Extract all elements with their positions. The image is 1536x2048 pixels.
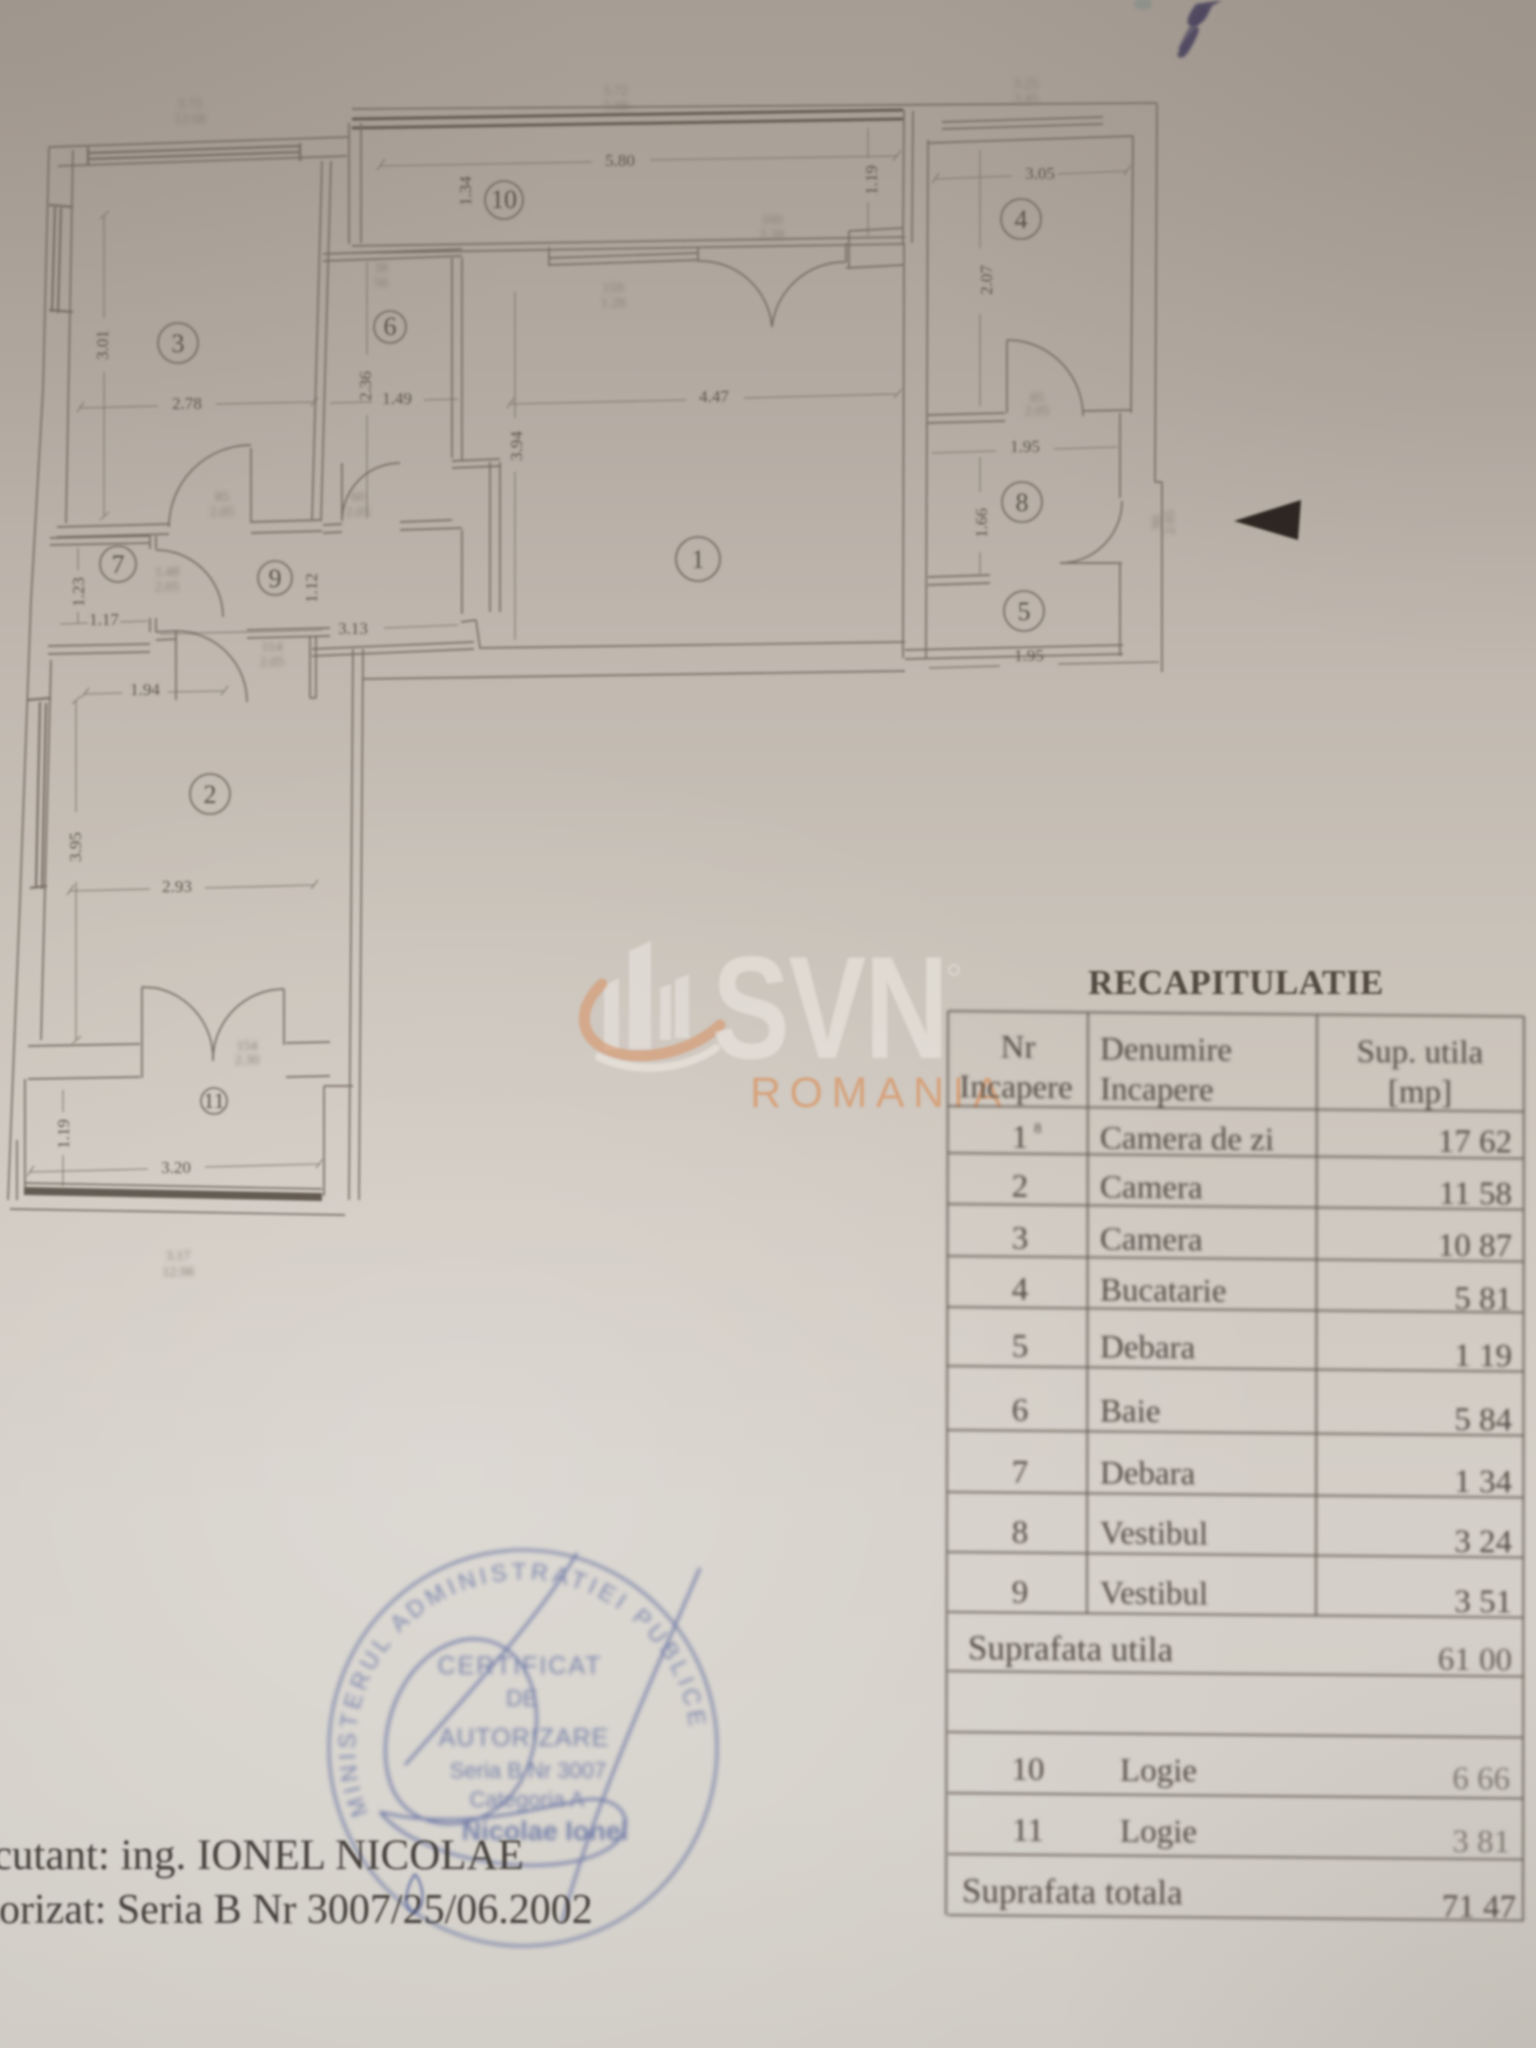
svg-text:Nr: Nr [1001, 1030, 1036, 1066]
svg-text:8: 8 [1016, 488, 1029, 517]
svg-text:3.13: 3.13 [338, 619, 368, 638]
svg-text:6: 6 [384, 312, 397, 341]
svg-text:1.23: 1.23 [69, 577, 88, 607]
svg-text:Sup. utila: Sup. utila [1357, 1034, 1484, 1071]
svg-text:2.07: 2.07 [977, 265, 996, 295]
svg-text:Camera: Camera [1100, 1169, 1203, 1206]
svg-text:60: 60 [351, 490, 365, 505]
svg-text:56: 56 [374, 276, 388, 291]
svg-text:2.78: 2.78 [172, 394, 202, 413]
svg-text:9: 9 [1012, 1575, 1028, 1611]
svg-text:3 24: 3 24 [1454, 1524, 1512, 1561]
svg-text:1.94: 1.94 [130, 680, 160, 699]
svg-text:61 00: 61 00 [1438, 1642, 1512, 1679]
svg-text:3.17: 3.17 [166, 1249, 191, 1264]
svg-text:71 47: 71 47 [1442, 1889, 1516, 1926]
svg-text:1.19: 1.19 [54, 1119, 73, 1149]
svg-text:85: 85 [215, 490, 229, 505]
svg-text:12.08: 12.08 [174, 112, 206, 127]
svg-text:3.25: 3.25 [1014, 77, 1039, 92]
svg-text:AUTORIZARE: AUTORIZARE [439, 1724, 610, 1752]
svg-text:3: 3 [172, 329, 185, 358]
svg-text:Camera de zi: Camera de zi [1100, 1120, 1274, 1158]
svg-text:1.49: 1.49 [382, 389, 412, 408]
svg-text:4.47: 4.47 [699, 387, 729, 406]
svg-text:Incapere: Incapere [959, 1069, 1073, 1106]
svg-text:5: 5 [1018, 597, 1031, 626]
svg-text:3 81: 3 81 [1452, 1824, 1510, 1861]
svg-text:4: 4 [1012, 1272, 1028, 1308]
svg-text:Incapere: Incapere [1100, 1071, 1214, 1108]
svg-text:6: 6 [1012, 1393, 1028, 1429]
svg-text:2.05: 2.05 [210, 505, 235, 520]
svg-text:6 66: 6 66 [1452, 1761, 1510, 1798]
svg-text:114: 114 [262, 640, 282, 655]
svg-text:7: 7 [112, 550, 125, 579]
svg-text:5: 5 [1012, 1329, 1028, 1365]
svg-text:Bucatarie: Bucatarie [1100, 1272, 1226, 1309]
svg-text:1 34: 1 34 [1454, 1464, 1512, 1501]
svg-text:3.45: 3.45 [1014, 92, 1039, 107]
svg-text:12.98: 12.98 [162, 1265, 194, 1280]
svg-text:Vestibul: Vestibul [1100, 1575, 1208, 1612]
svg-text:2: 2 [1012, 1169, 1028, 1205]
svg-text:RECAPITULATIE: RECAPITULATIE [1088, 963, 1384, 1002]
svg-text:11: 11 [1012, 1813, 1044, 1849]
svg-text:Executant: ing. IONEL NICOLAE: Executant: ing. IONEL NICOLAE [0, 1832, 524, 1879]
svg-text:160: 160 [762, 213, 783, 228]
svg-text:11: 11 [203, 1088, 224, 1113]
svg-text:38: 38 [374, 261, 388, 276]
svg-text:1 19: 1 19 [1454, 1338, 1512, 1375]
svg-text:2.05: 2.05 [1025, 404, 1050, 419]
svg-text:1.66: 1.66 [972, 508, 991, 538]
svg-text:10: 10 [491, 185, 517, 214]
svg-text:4: 4 [1015, 205, 1028, 234]
svg-text:8: 8 [1034, 1121, 1041, 1137]
svg-text:Suprafata totala: Suprafata totala [962, 1871, 1183, 1912]
svg-text:5.80: 5.80 [605, 151, 635, 170]
svg-text:[mp]: [mp] [1388, 1074, 1452, 1111]
svg-text:2.93: 2.93 [162, 877, 192, 896]
svg-text:Logie: Logie [1120, 1753, 1197, 1790]
svg-text:1.95: 1.95 [1014, 646, 1044, 665]
svg-text:11 58: 11 58 [1439, 1176, 1512, 1213]
svg-text:Debara: Debara [1100, 1329, 1196, 1366]
svg-text:1.12: 1.12 [302, 573, 321, 603]
svg-text:5.98: 5.98 [604, 99, 629, 114]
svg-text:Autorizat: Seria B Nr 3007/25/: Autorizat: Seria B Nr 3007/25/06.2002 [0, 1887, 593, 1933]
svg-text:Vestibul: Vestibul [1100, 1515, 1208, 1552]
svg-text:5 84: 5 84 [1454, 1402, 1512, 1439]
svg-text:1: 1 [692, 545, 705, 574]
svg-text:2.05: 2.05 [155, 580, 180, 595]
svg-text:2.05: 2.05 [346, 505, 371, 520]
svg-text:5.72: 5.72 [604, 84, 629, 99]
svg-text:3.20: 3.20 [161, 1158, 191, 1177]
svg-text:Logie: Logie [1120, 1814, 1197, 1851]
svg-text:Seria B Nr 3007: Seria B Nr 3007 [450, 1758, 607, 1783]
svg-text:154: 154 [237, 1039, 258, 1054]
svg-text:2.38: 2.38 [760, 228, 785, 243]
svg-text:3.94: 3.94 [507, 431, 526, 461]
svg-text:8: 8 [1012, 1515, 1028, 1551]
svg-text:10 87: 10 87 [1438, 1228, 1512, 1265]
svg-text:Categoria A: Categoria A [470, 1787, 585, 1812]
svg-text:2.36: 2.36 [356, 371, 375, 401]
svg-text:Baie: Baie [1100, 1393, 1160, 1430]
svg-text:3.95: 3.95 [66, 832, 85, 862]
svg-text:CERTIFICAT: CERTIFICAT [438, 1652, 603, 1680]
svg-text:1.17: 1.17 [89, 610, 119, 629]
svg-text:Suprafata utila: Suprafata utila [968, 1628, 1174, 1669]
svg-text:3.01: 3.01 [93, 330, 112, 360]
svg-text:1.34: 1.34 [456, 176, 475, 206]
svg-text:SVN: SVN [712, 927, 947, 1090]
svg-text:3: 3 [1012, 1221, 1028, 1257]
svg-text:2.30: 2.30 [235, 1053, 260, 1068]
svg-text:10: 10 [1012, 1752, 1045, 1788]
svg-text:5 81: 5 81 [1454, 1281, 1512, 1318]
svg-text:1: 1 [1012, 1120, 1028, 1156]
svg-text:1.95: 1.95 [1010, 437, 1040, 456]
svg-text:1.19: 1.19 [862, 165, 881, 195]
svg-text:Debara: Debara [1100, 1455, 1196, 1492]
svg-text:1.48: 1.48 [155, 565, 180, 580]
svg-text:2.05: 2.05 [260, 655, 285, 670]
svg-text:2.05: 2.05 [1163, 510, 1178, 535]
svg-text:17 62: 17 62 [1438, 1124, 1512, 1161]
svg-text:3.05: 3.05 [1025, 164, 1055, 183]
svg-text:2: 2 [204, 780, 217, 809]
svg-text:9: 9 [269, 564, 282, 593]
svg-text:3.72: 3.72 [178, 97, 203, 112]
svg-text:Camera: Camera [1100, 1221, 1203, 1258]
svg-text:3 51: 3 51 [1454, 1584, 1512, 1621]
svg-text:159: 159 [603, 281, 624, 296]
svg-text:7: 7 [1012, 1455, 1028, 1491]
svg-text:Denumire: Denumire [1100, 1031, 1232, 1068]
svg-text:1.28: 1.28 [601, 296, 626, 311]
